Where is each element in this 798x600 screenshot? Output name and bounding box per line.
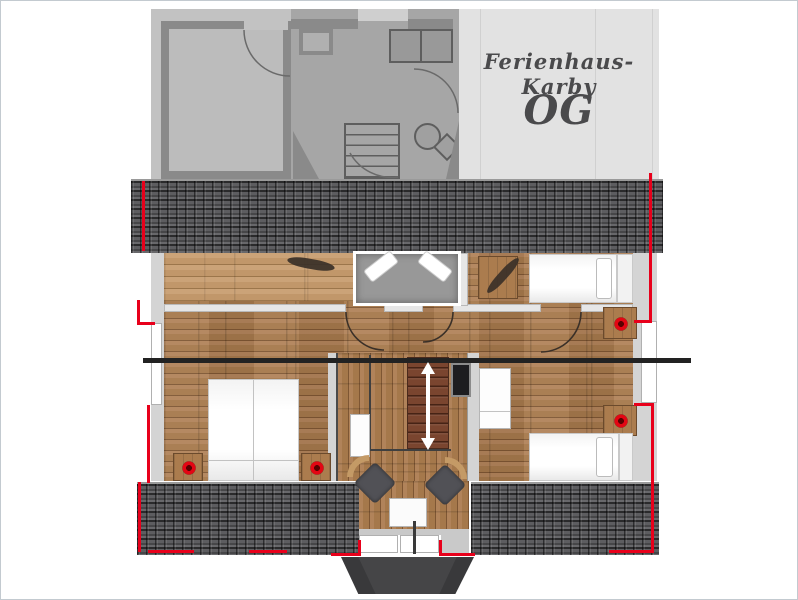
parquet-light-area [164, 253, 361, 301]
title-panel: Ferienhaus-Karby OG [459, 9, 659, 179]
window-left [151, 323, 162, 405]
single-bed-top-right [529, 254, 617, 303]
bed-foot-divider [209, 460, 298, 461]
window-marking-red [147, 405, 150, 483]
ghost-floor-plan [151, 9, 459, 179]
floorplan-canvas: Ferienhaus-Karby OG [0, 0, 798, 600]
window-marking-red [609, 550, 654, 553]
ghost-staircase [344, 123, 400, 179]
dormer-roof [341, 557, 474, 594]
armchair [421, 461, 469, 509]
window-marking-red [358, 540, 361, 556]
window-marking-red [142, 181, 145, 251]
dormer-roof-face [341, 557, 474, 594]
ghost-top-wall [408, 19, 453, 29]
floor-label: OG [459, 87, 659, 134]
ghost-door-gap [244, 21, 288, 30]
window-marking-red [649, 173, 652, 323]
bed-frame-end [617, 254, 633, 303]
window-marking-red [137, 322, 155, 325]
wardrobe-divider [480, 411, 510, 412]
ghost-closet [299, 29, 333, 55]
tv-panel [451, 363, 471, 397]
red-lamp-icon [614, 317, 628, 331]
window-marking-red [148, 550, 194, 553]
window-marking-red [651, 403, 654, 551]
red-lamp-icon [182, 461, 196, 475]
window-marking-red [249, 550, 287, 553]
roof-strip-bottom-right [471, 482, 659, 555]
window-marking-red [441, 553, 475, 556]
pillow [363, 250, 399, 283]
inner-wall [164, 304, 346, 312]
nightstand [603, 405, 637, 436]
dormer-wall-piece [441, 529, 469, 555]
staircase [407, 357, 449, 449]
ghost-top-gap [358, 9, 408, 21]
bed-center-divider [253, 380, 254, 480]
gray-double-bed [353, 251, 461, 306]
nightstand [603, 307, 637, 339]
pillow [417, 250, 453, 283]
single-bed-bottom-right [529, 433, 619, 481]
window-marking-red [634, 403, 654, 406]
nightstand [301, 453, 331, 481]
section-line [143, 358, 691, 363]
window-marking-red [138, 482, 141, 552]
red-lamp-icon [310, 461, 324, 475]
ghost-top-wall [291, 19, 358, 29]
window-marking-red [331, 553, 361, 556]
ghost-room-left [161, 21, 291, 179]
dormer-window [400, 535, 439, 553]
dormer-window [359, 535, 398, 553]
pillow [596, 437, 613, 477]
side-table [389, 498, 427, 527]
red-lamp-icon [614, 414, 628, 428]
dormer-mullion [413, 521, 416, 554]
wardrobe [479, 368, 511, 429]
roof-strip-bottom-left [137, 482, 359, 555]
nightstand [173, 453, 203, 481]
pillow [596, 258, 612, 299]
dresser [350, 414, 370, 457]
ghost-kitchen-divider [420, 29, 422, 63]
double-bed-bottom-left [208, 379, 299, 481]
window-marking-red [634, 320, 652, 323]
roof-strip-top [131, 179, 663, 253]
bed-frame-end [619, 433, 633, 481]
